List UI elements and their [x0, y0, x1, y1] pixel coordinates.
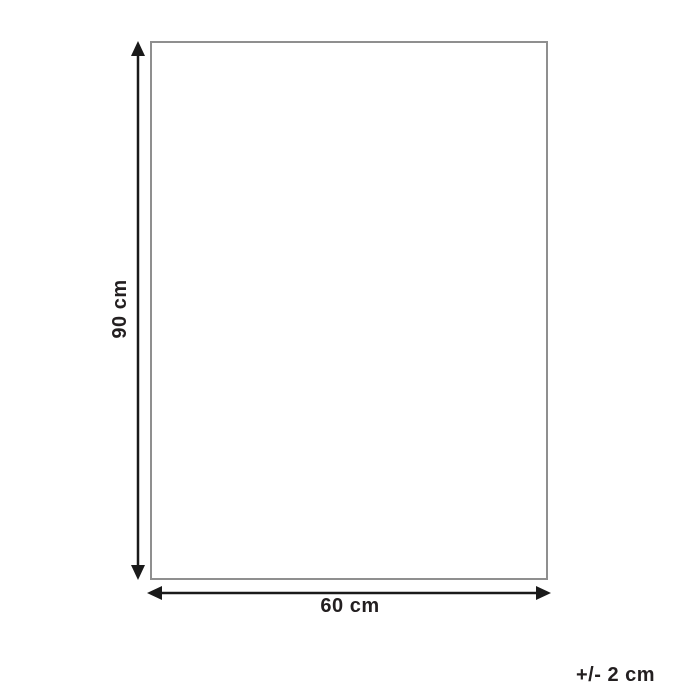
width-dimension-label: 60 cm — [300, 595, 400, 618]
product-outline-rectangle — [150, 41, 548, 580]
tolerance-label: +/- 2 cm — [576, 664, 655, 687]
dimension-diagram: 90 cm 60 cm +/- 2 cm — [0, 0, 700, 700]
height-dimension-label: 90 cm — [108, 259, 132, 359]
